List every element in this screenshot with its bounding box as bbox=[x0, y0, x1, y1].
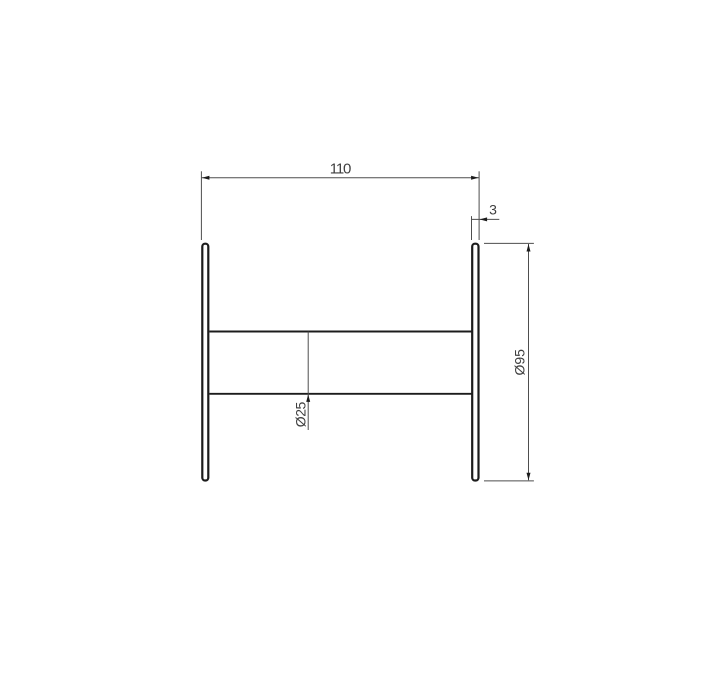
svg-text:110: 110 bbox=[330, 161, 351, 178]
svg-text:Ø95: Ø95 bbox=[512, 349, 528, 376]
svg-text:Ø25: Ø25 bbox=[292, 402, 308, 428]
svg-text:3: 3 bbox=[489, 202, 497, 218]
